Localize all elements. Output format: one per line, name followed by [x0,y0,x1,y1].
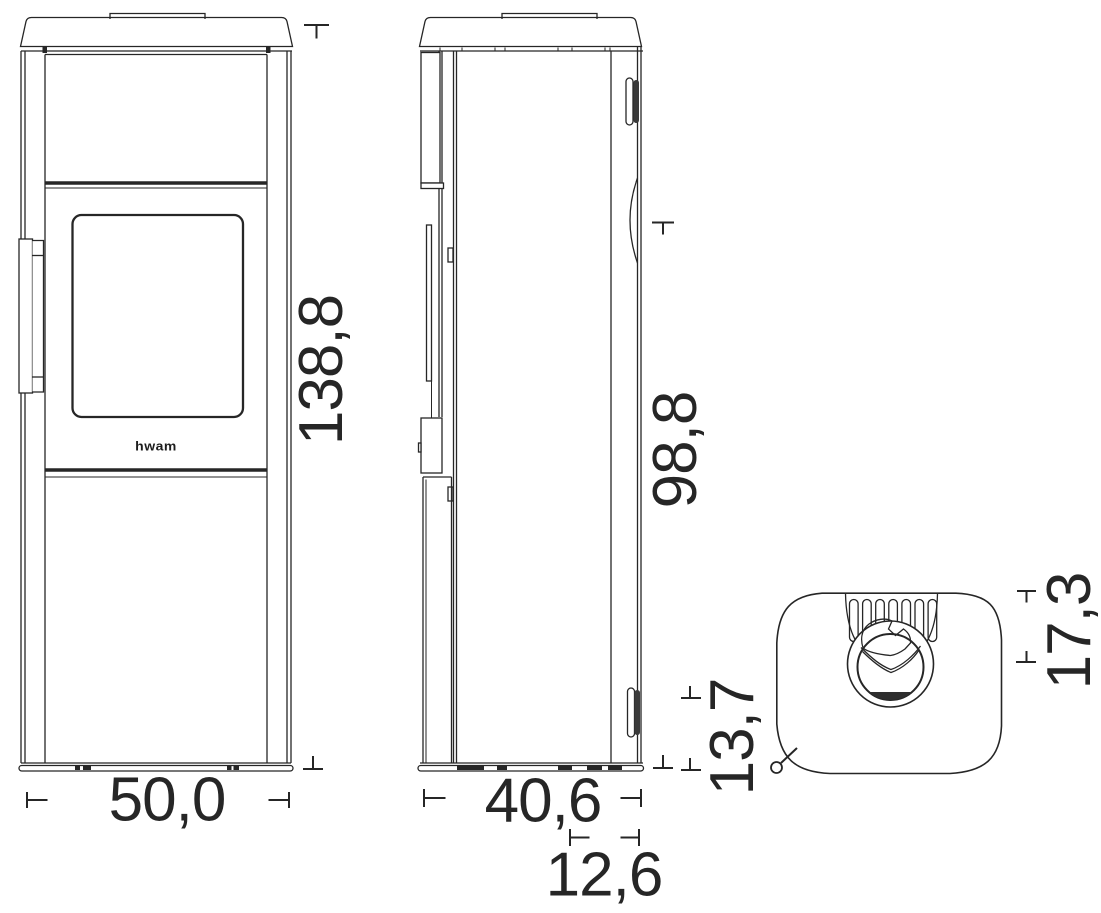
side-view [418,14,644,772]
rear-vent-slot-top [626,78,633,125]
top-view-dimension-markers [1016,591,1036,662]
marker-side-height-bottom [653,755,673,768]
marker-front-width-left [27,792,48,808]
side-top-cap [420,18,642,47]
door-handle-side [421,53,444,189]
door-handle-front [19,239,44,393]
side-top-stub [502,14,597,20]
marker-front-height-bottom [303,756,323,769]
rear-arc [630,178,638,263]
dim-front-height: 138,8 [291,295,353,445]
marker-side-depth-right [621,789,642,807]
brand-logo: hwam [135,439,177,453]
marker-side-depth-left [424,789,446,807]
dim-side-height: 98,8 [645,392,707,509]
marker-front-height-top [304,25,329,39]
side-view-dimension-markers [424,223,701,847]
dim-front-width: 50,0 [109,770,226,832]
dim-plinth-height: 13,7 [702,679,764,796]
marker-top-depth-top [1017,591,1036,603]
technical-drawing: 138,8 50,0 98,8 40,6 13,7 12,6 17,3 hwam [0,0,1101,913]
marker-top-depth-bottom [1016,651,1036,662]
marker-side-height-top [652,223,674,235]
side-latch-block [419,418,443,473]
dim-top-flue-distance: 17,3 [1039,573,1101,690]
top-view [771,593,1002,773]
front-top-cap [21,18,293,47]
front-view [19,14,293,772]
front-top-stub [110,14,205,20]
marker-front-width-right [269,792,290,808]
rear-vent-slot-bottom [628,688,635,737]
dim-side-depth: 40,6 [485,771,602,833]
dim-flue-offset: 12,6 [546,845,663,907]
door-glass [73,215,244,417]
